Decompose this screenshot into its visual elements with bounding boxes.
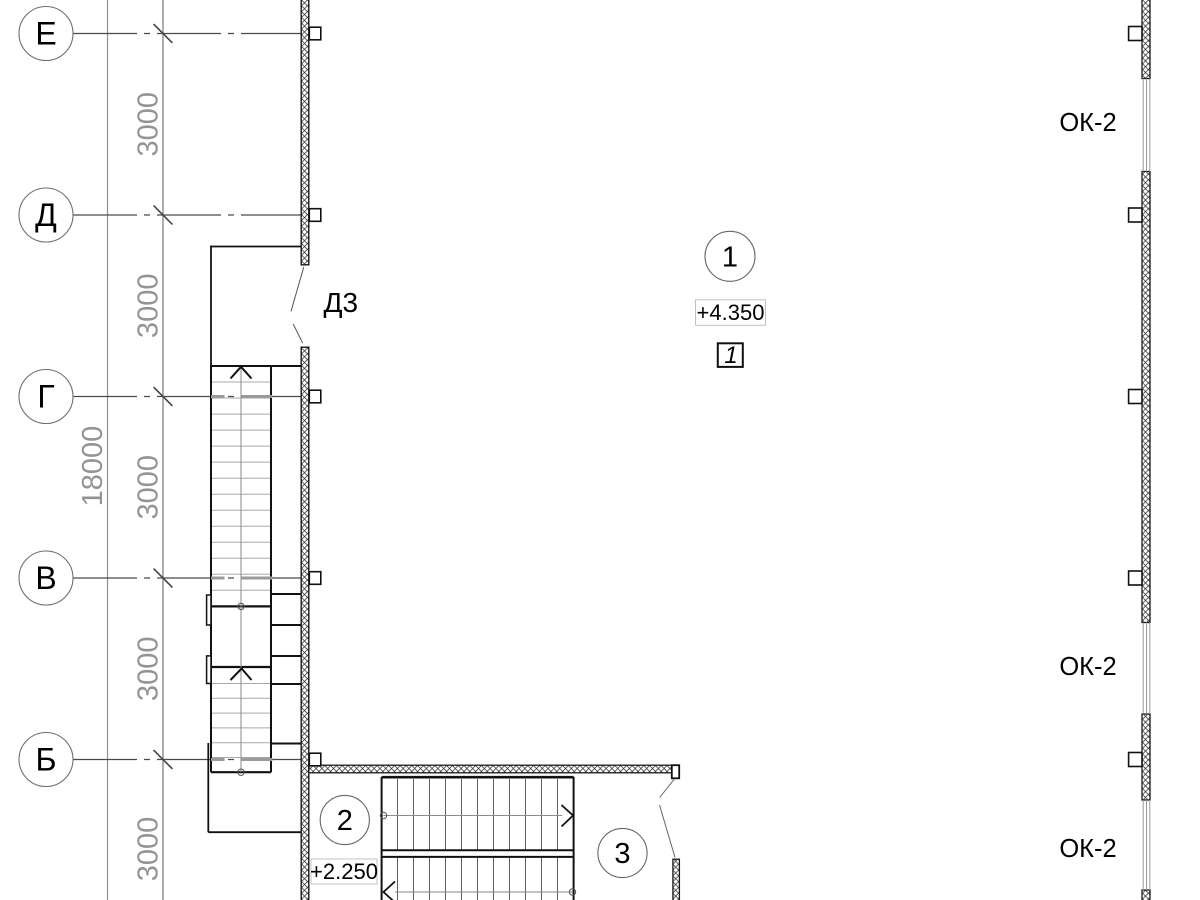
svg-text:3000: 3000 bbox=[133, 455, 165, 520]
svg-text:1: 1 bbox=[724, 342, 737, 369]
svg-text:18000: 18000 bbox=[77, 426, 109, 507]
svg-text:+2.250: +2.250 bbox=[310, 859, 378, 884]
svg-text:Б: Б bbox=[36, 742, 57, 778]
svg-text:Д: Д bbox=[35, 197, 57, 233]
svg-text:2: 2 bbox=[337, 805, 353, 837]
svg-text:Д3: Д3 bbox=[324, 287, 359, 318]
svg-text:ОК-2: ОК-2 bbox=[1059, 835, 1116, 863]
svg-text:1: 1 bbox=[722, 242, 738, 274]
svg-text:3: 3 bbox=[614, 838, 630, 870]
svg-text:3000: 3000 bbox=[133, 817, 165, 882]
svg-text:Е: Е bbox=[35, 16, 56, 52]
svg-text:3000: 3000 bbox=[133, 274, 165, 339]
svg-text:В: В bbox=[35, 560, 56, 596]
svg-text:+4.350: +4.350 bbox=[697, 300, 765, 325]
svg-text:ОК-2: ОК-2 bbox=[1059, 653, 1116, 681]
svg-text:ОК-2: ОК-2 bbox=[1059, 109, 1116, 137]
svg-text:Г: Г bbox=[37, 379, 54, 415]
svg-text:3000: 3000 bbox=[133, 637, 165, 702]
svg-text:3000: 3000 bbox=[133, 92, 165, 157]
